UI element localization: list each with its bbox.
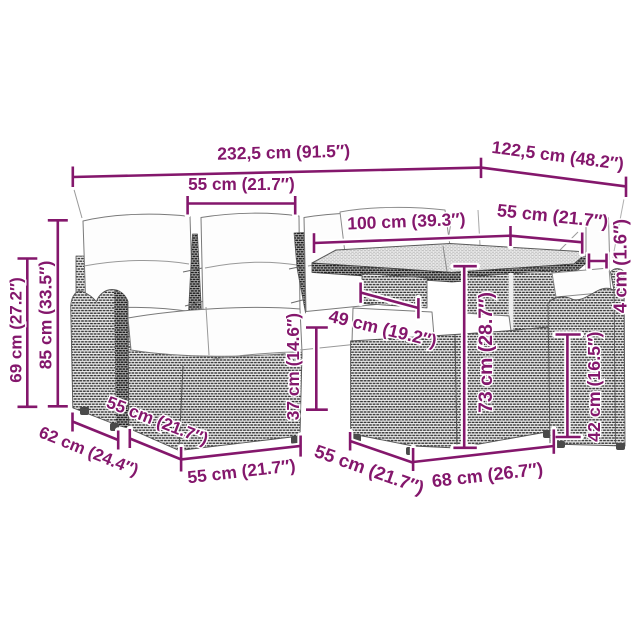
svg-text:4 cm (1.6″): 4 cm (1.6″) bbox=[610, 219, 631, 313]
svg-text:85 cm (33.5″): 85 cm (33.5″) bbox=[35, 261, 55, 370]
svg-text:69 cm (27.2″): 69 cm (27.2″) bbox=[6, 277, 25, 382]
svg-text:73 cm (28.7″): 73 cm (28.7″) bbox=[475, 292, 497, 413]
svg-text:37 cm (14.6″): 37 cm (14.6″) bbox=[283, 313, 303, 420]
svg-text:55 cm (21.7″): 55 cm (21.7″) bbox=[188, 174, 295, 194]
svg-text:42 cm (16.5″): 42 cm (16.5″) bbox=[584, 331, 604, 441]
svg-text:232,5 cm (91.5″): 232,5 cm (91.5″) bbox=[217, 141, 350, 164]
